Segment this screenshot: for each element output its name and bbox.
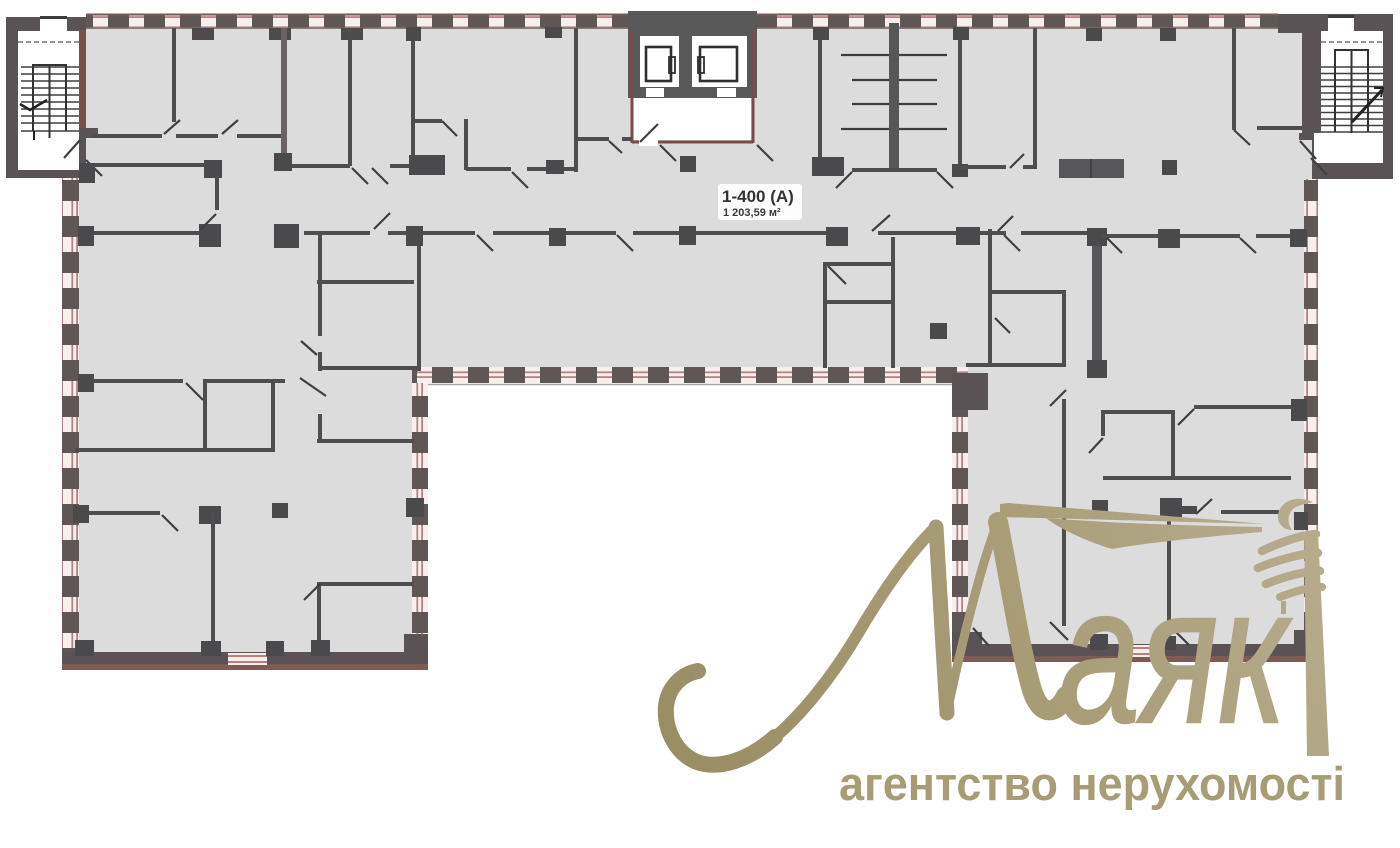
svg-text:агентство нерухомості: агентство нерухомості	[839, 757, 1345, 810]
svg-text:аяк: аяк	[1059, 546, 1292, 764]
svg-text:1-400 (А): 1-400 (А)	[722, 187, 794, 206]
svg-text:1 203,59 м²: 1 203,59 м²	[723, 207, 781, 219]
